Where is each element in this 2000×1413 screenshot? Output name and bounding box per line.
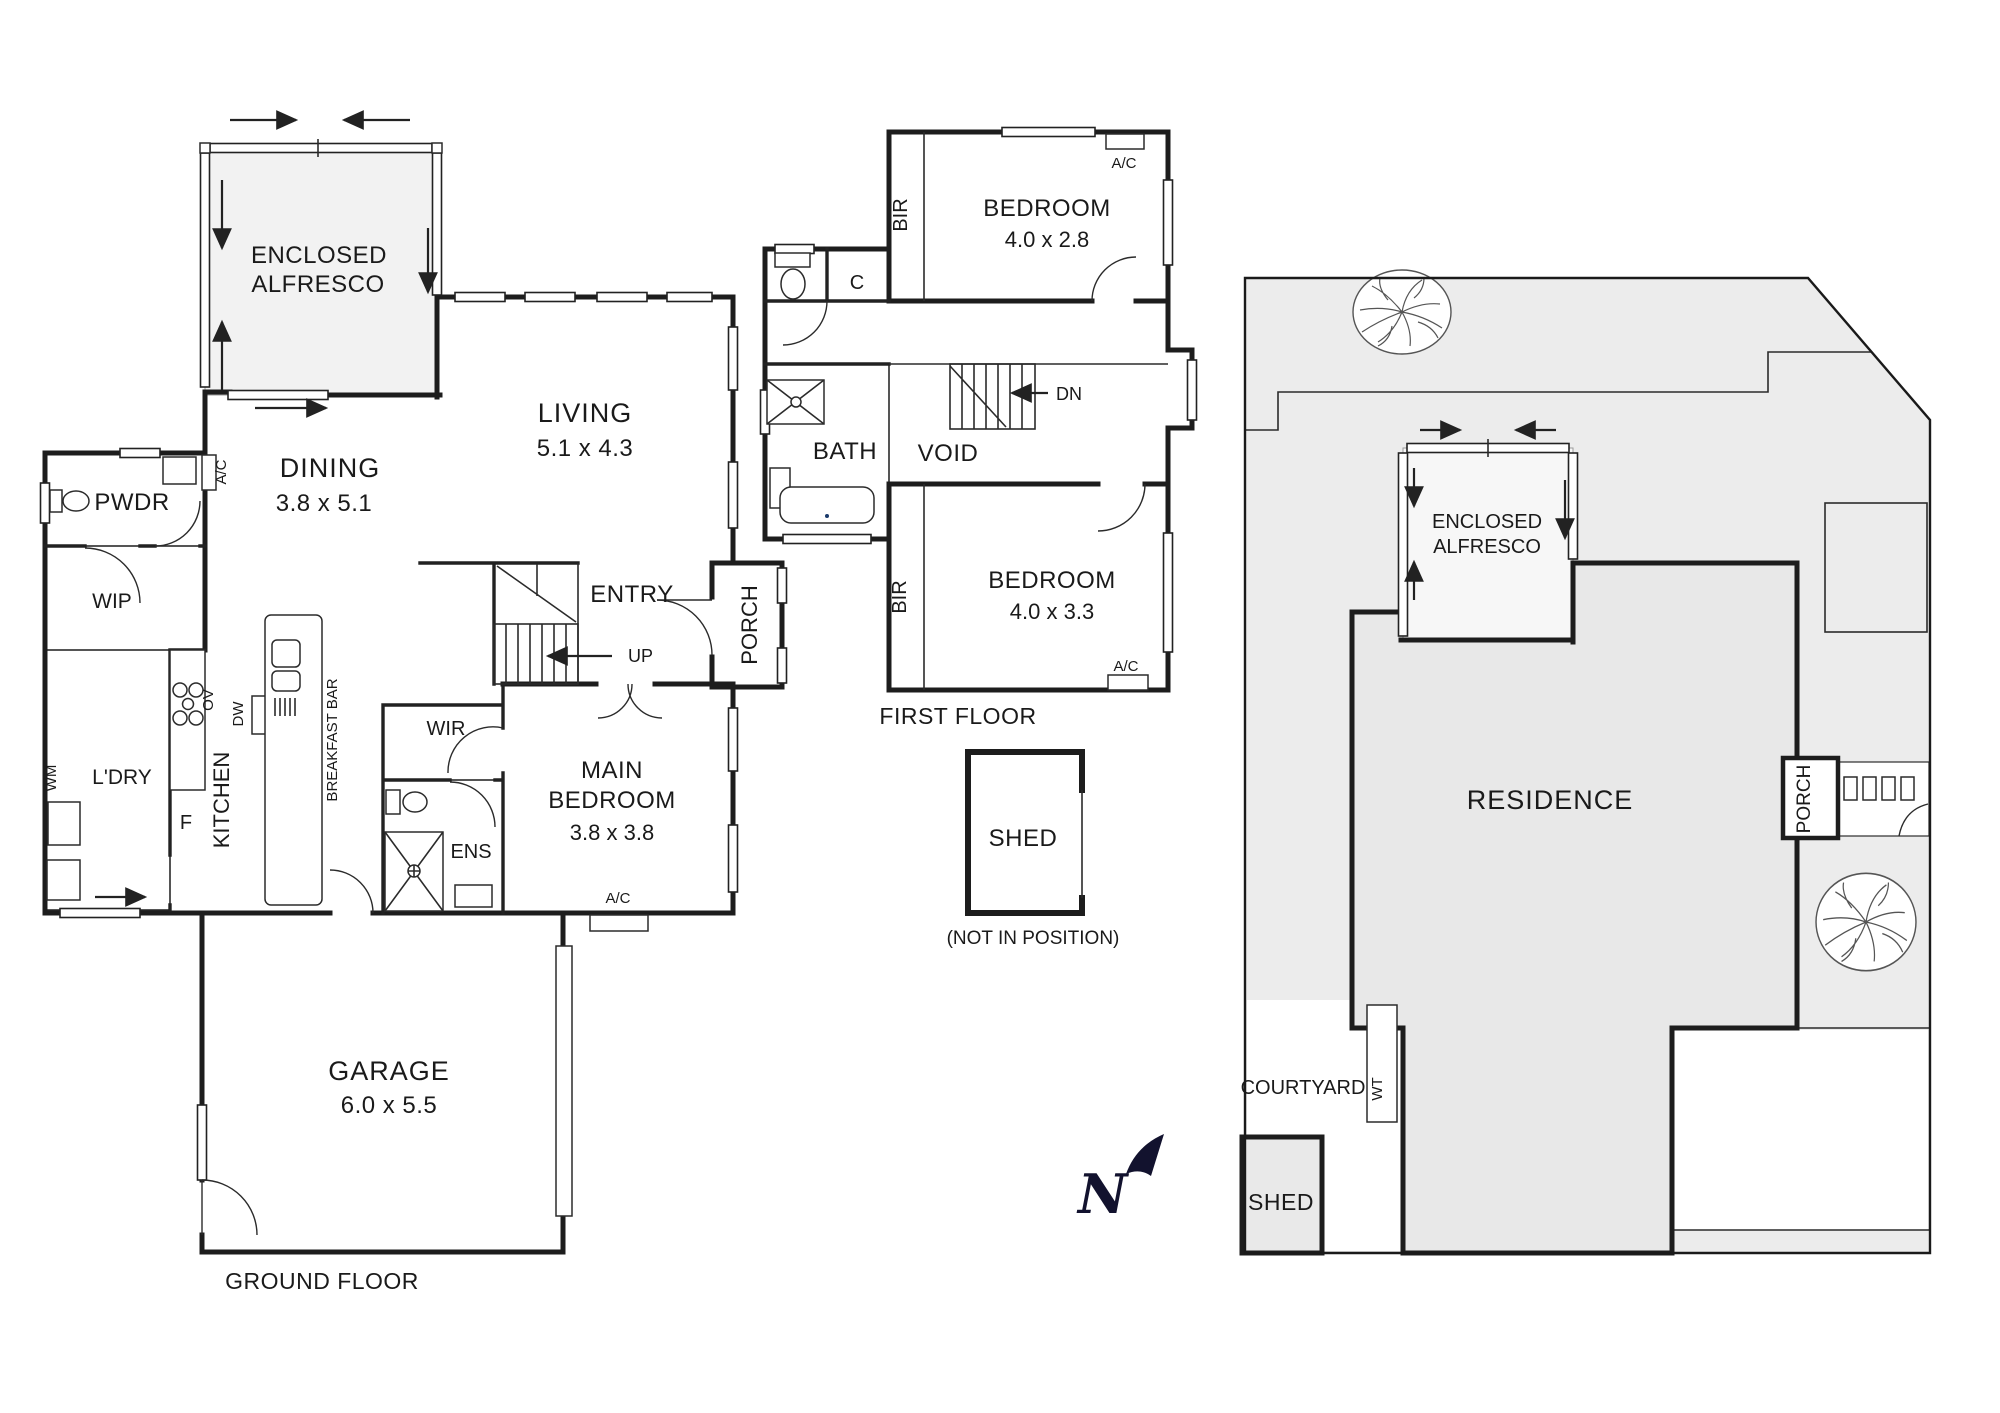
first-floor-title: FIRST FLOOR xyxy=(879,703,1036,729)
site-porch-label: PORCH xyxy=(1794,765,1815,834)
gf-porch-label: PORCH xyxy=(737,585,762,664)
floorplan-drawing: N ENCLOSED ALFRESCO LIVING 5.1 x 4.3 DIN… xyxy=(0,0,2000,1413)
gf-main-bed-ac-label: A/C xyxy=(605,890,630,907)
gf-entry-label: ENTRY xyxy=(590,581,673,608)
site-shed-label: SHED xyxy=(1248,1189,1314,1215)
ff-stairs-down xyxy=(950,364,1048,429)
ff-bed2-dims: 4.0 x 3.3 xyxy=(1010,599,1094,624)
ff-bed2-ac-label: A/C xyxy=(1113,658,1138,675)
ff-c-label: C xyxy=(850,272,864,294)
gf-kitchen-label: KITCHEN xyxy=(209,752,234,849)
ff-windows xyxy=(761,128,1197,653)
ff-void-label: VOID xyxy=(918,440,979,467)
site-courtyard-label: COURTYARD xyxy=(1241,1077,1366,1099)
tree-icon xyxy=(1353,270,1451,354)
gf-living-dims: 5.1 x 4.3 xyxy=(537,435,634,462)
ac-unit-icon xyxy=(1106,134,1144,149)
ff-exterior-walls xyxy=(765,132,1192,690)
gf-up-label: UP xyxy=(628,646,653,666)
ff-bath-label: BATH xyxy=(813,438,877,465)
gf-wm-label: WM xyxy=(43,765,60,792)
shower-icon xyxy=(385,832,443,911)
site-water-tank xyxy=(1367,1005,1397,1122)
site-driveway xyxy=(1674,1030,1928,1230)
shed-label: SHED xyxy=(989,825,1058,852)
ground-floor-title: GROUND FLOOR xyxy=(225,1268,419,1294)
ff-bed1-label: BEDROOM xyxy=(983,195,1111,222)
site-residence-label: RESIDENCE xyxy=(1467,785,1634,815)
ff-bir1-label: BIR xyxy=(890,198,912,231)
laundry-trough-icon xyxy=(47,860,80,900)
toilet-icon xyxy=(781,269,805,299)
gf-main-bed-label1: MAIN xyxy=(581,757,643,784)
basin-icon xyxy=(163,457,196,484)
gf-dining-ac-label: A/C xyxy=(213,459,230,484)
gf-dining-dims: 3.8 x 5.1 xyxy=(276,490,373,517)
dishwasher-icon xyxy=(252,696,266,734)
gf-ldry-label: L'DRY xyxy=(92,766,152,789)
ff-bed1-dims: 4.0 x 2.8 xyxy=(1005,227,1089,252)
first-floor-plan xyxy=(761,128,1197,691)
gf-fridge-label: F xyxy=(180,812,192,834)
shower-icon xyxy=(767,380,824,424)
gf-wir-label: WIR xyxy=(427,718,466,740)
gf-main-bed-dims: 3.8 x 3.8 xyxy=(570,820,654,845)
ff-bed2-label: BEDROOM xyxy=(988,567,1116,594)
floorplan-page: N ENCLOSED ALFRESCO LIVING 5.1 x 4.3 DIN… xyxy=(0,0,2000,1413)
gf-laundry-fixtures xyxy=(47,802,80,900)
gf-garage-dims: 6.0 x 5.5 xyxy=(341,1092,438,1119)
ff-bed1-ac-label: A/C xyxy=(1111,155,1136,172)
gf-wip-label: WIP xyxy=(92,590,132,613)
gf-living-label: LIVING xyxy=(538,398,633,428)
toilet-icon xyxy=(403,792,427,812)
north-arrow-icon xyxy=(1126,1134,1164,1176)
gf-ov-label: OV xyxy=(200,689,217,711)
gf-breakfast-bar-label: BREAKFAST BAR xyxy=(324,678,341,801)
gf-pwdr-label: PWDR xyxy=(94,489,169,516)
gf-alfresco-label2: ALFRESCO xyxy=(251,271,384,298)
toilet-icon xyxy=(63,491,89,511)
gf-dw-label: DW xyxy=(230,701,247,727)
tree-icon xyxy=(1816,873,1916,970)
north-arrow: N xyxy=(1076,1134,1164,1226)
gf-main-bed-label2: BEDROOM xyxy=(548,787,676,814)
site-wt-label: WT xyxy=(1369,1077,1386,1100)
site-alfresco-label1: ENCLOSED xyxy=(1432,511,1542,533)
ac-unit-icon xyxy=(1108,675,1148,690)
washing-machine-icon xyxy=(48,802,80,845)
ac-unit-icon xyxy=(590,915,648,931)
ff-bir2-label: BIR xyxy=(889,580,911,613)
site-alfresco-label2: ALFRESCO xyxy=(1433,536,1541,558)
gf-ens-label: ENS xyxy=(450,841,491,863)
gf-dining-label: DINING xyxy=(280,453,381,483)
north-label: N xyxy=(1076,1162,1130,1226)
gf-alfresco-label1: ENCLOSED xyxy=(251,242,387,269)
shed-note: (NOT IN POSITION) xyxy=(947,928,1120,949)
gf-garage-door xyxy=(556,946,572,1216)
gf-garage-label: GARAGE xyxy=(328,1056,450,1086)
site-plan xyxy=(1242,270,1930,1253)
gf-kitchen-fixtures xyxy=(170,615,322,905)
ff-dn-label: DN xyxy=(1056,384,1082,404)
vanity-icon xyxy=(455,885,492,907)
